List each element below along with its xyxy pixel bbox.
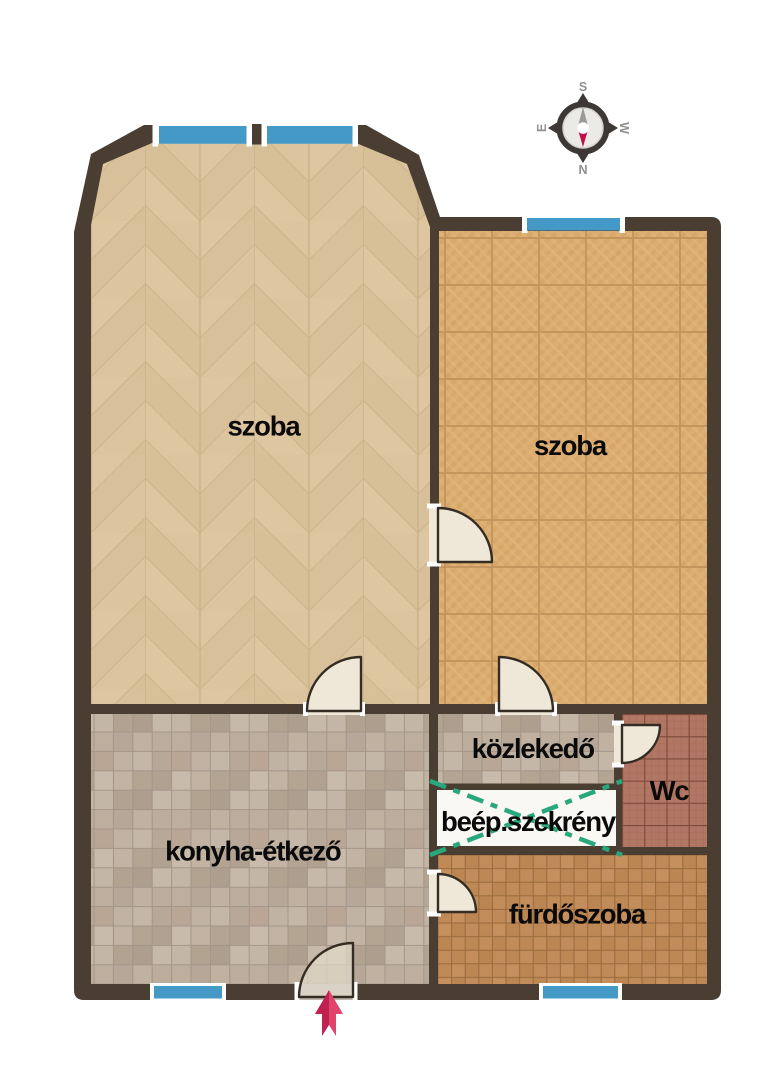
svg-text:szoba: szoba (228, 411, 302, 442)
svg-text:beép.szekrény: beép.szekrény (441, 806, 617, 837)
svg-text:N: N (578, 162, 587, 176)
svg-text:szoba: szoba (534, 430, 608, 461)
svg-text:közlekedő: közlekedő (472, 733, 595, 764)
svg-text:W: W (617, 122, 631, 134)
svg-text:Wc: Wc (650, 775, 690, 806)
svg-text:S: S (579, 80, 587, 94)
svg-text:fürdőszoba: fürdőszoba (509, 899, 647, 930)
svg-text:E: E (535, 124, 549, 132)
svg-text:konyha-étkező: konyha-étkező (165, 836, 341, 867)
